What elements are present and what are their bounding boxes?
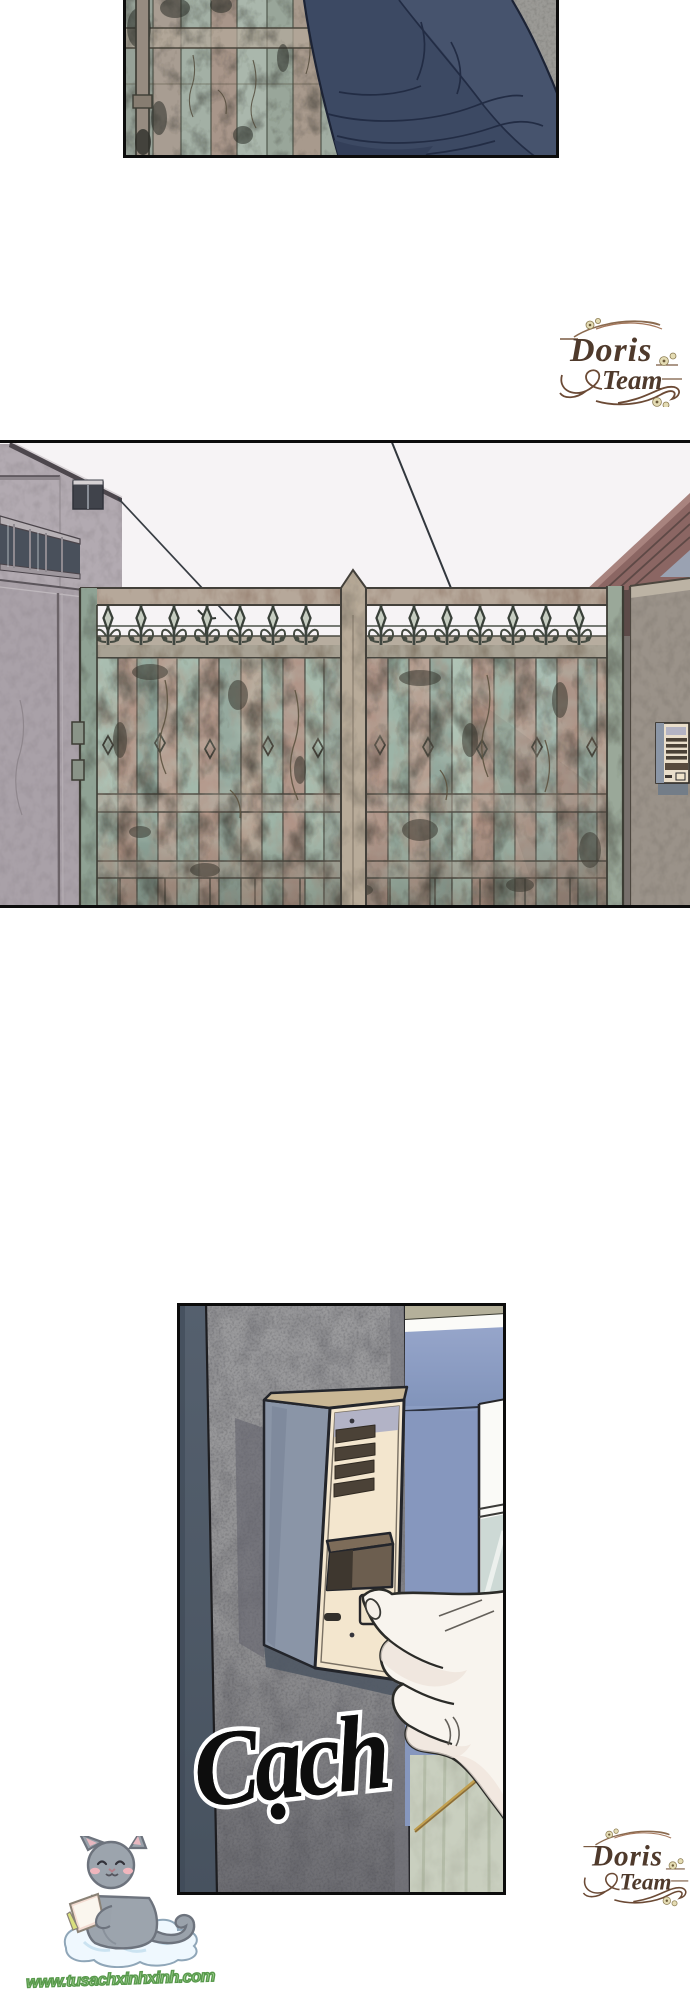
svg-text:Cạch: Cạch	[188, 1692, 391, 1830]
svg-text:Team: Team	[602, 365, 663, 395]
svg-text:Doris: Doris	[569, 332, 652, 369]
